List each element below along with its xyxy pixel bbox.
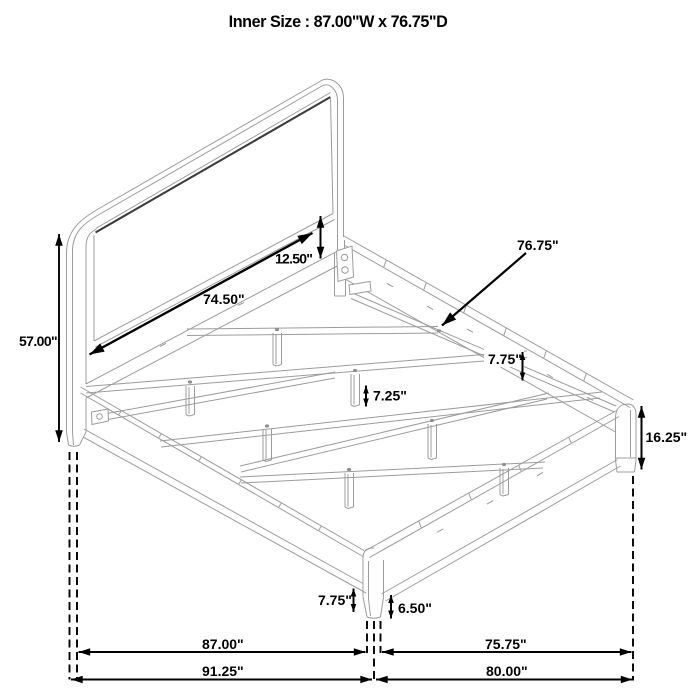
svg-text:76.75": 76.75" <box>517 237 559 253</box>
svg-text:7.25": 7.25" <box>373 388 407 404</box>
svg-text:75.75": 75.75" <box>485 636 527 652</box>
svg-text:91.25": 91.25" <box>202 663 244 679</box>
svg-text:57.00": 57.00" <box>19 333 57 349</box>
svg-text:7.75": 7.75" <box>318 592 352 608</box>
svg-text:6.50": 6.50" <box>398 600 432 616</box>
svg-text:87.00": 87.00" <box>202 636 244 652</box>
svg-text:16.25": 16.25" <box>646 429 688 445</box>
svg-text:7.75": 7.75" <box>488 351 522 367</box>
svg-text:Inner Size : 87.00"W x 76.75"D: Inner Size : 87.00"W x 76.75"D <box>229 13 448 31</box>
svg-text:80.00": 80.00" <box>486 663 528 679</box>
svg-text:74.50": 74.50" <box>203 291 245 307</box>
svg-text:12.50": 12.50" <box>275 251 312 267</box>
